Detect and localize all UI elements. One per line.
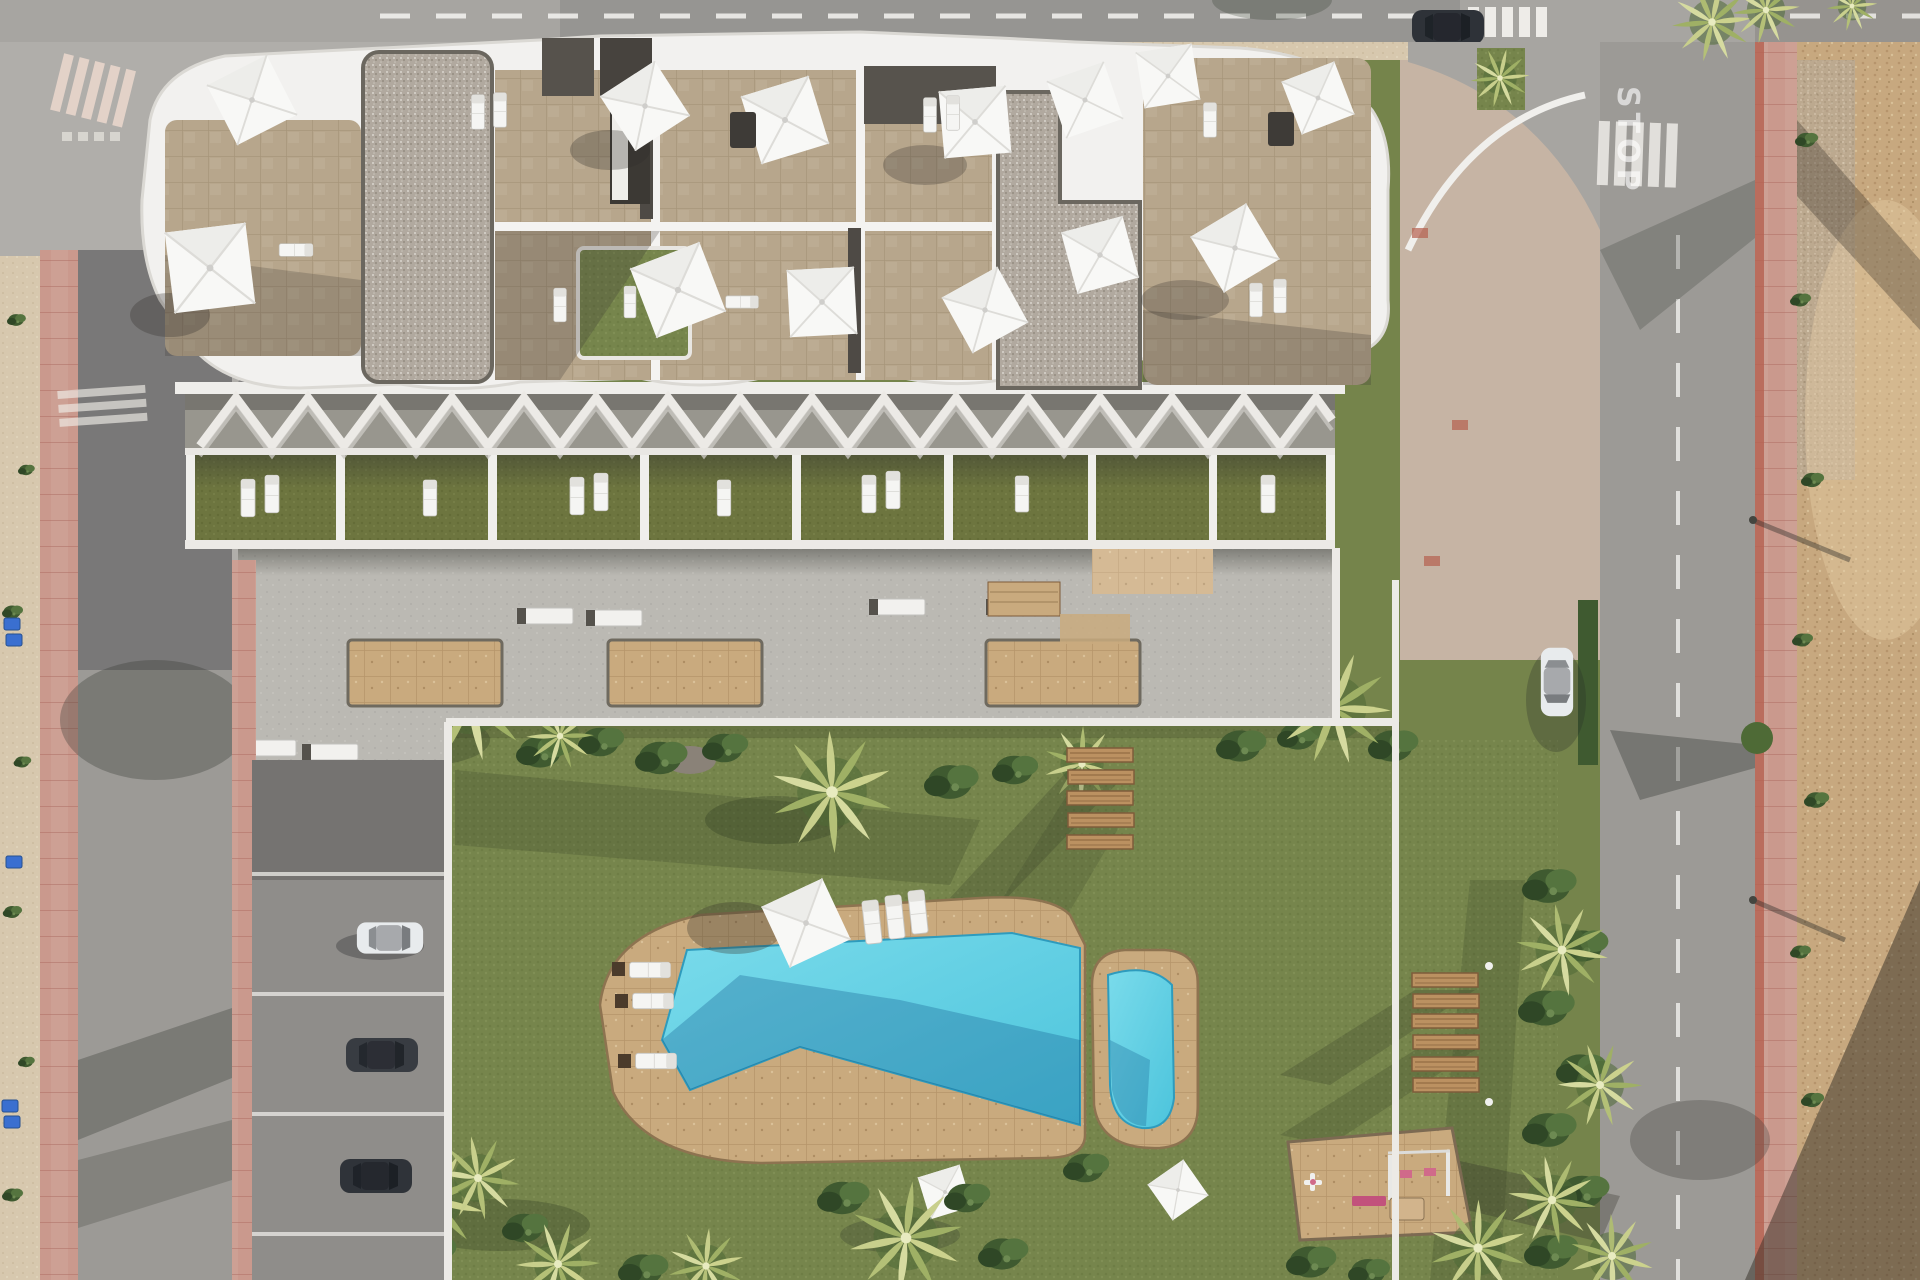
- wood-bench: [1413, 994, 1479, 1008]
- sand-planter: [986, 640, 1140, 706]
- wood-bench: [1413, 1035, 1479, 1049]
- roof-lounger: [924, 98, 937, 133]
- plaza-bench: [302, 744, 358, 760]
- roof-table-set: [730, 112, 756, 148]
- recycle-bin: [2, 1100, 18, 1112]
- terrace-lounger: [1261, 475, 1275, 512]
- wood-plank: [1068, 770, 1134, 784]
- roof-lounger: [624, 286, 636, 318]
- street-car-dark: [1412, 10, 1484, 44]
- roof-lounger: [1274, 279, 1287, 313]
- wood-bench: [1412, 1014, 1478, 1028]
- kidney-pool: [1092, 950, 1198, 1148]
- stall-line: [252, 872, 446, 876]
- stop-road-marking: STOP: [1610, 86, 1645, 196]
- playground: [1288, 1128, 1472, 1240]
- terrace-lounger: [594, 473, 608, 510]
- pool-lounger: [636, 1053, 677, 1068]
- roof-lounger: [279, 244, 313, 257]
- terrace-lounger: [862, 475, 876, 512]
- roof-lounger: [947, 96, 960, 131]
- recycle-bin: [6, 856, 22, 868]
- terrace-lounger: [265, 475, 279, 512]
- crosswalk-left-road: [57, 385, 147, 427]
- swing-seat: [1400, 1170, 1412, 1178]
- garden-east-wall: [1392, 580, 1399, 1280]
- scene-svg: STOP: [0, 0, 1920, 1280]
- terrace-lounger: [570, 477, 584, 514]
- roof-lounger: [554, 288, 567, 322]
- sand-planter: [608, 640, 762, 706]
- ground-terraces: [185, 455, 1335, 549]
- wood-plank: [1067, 791, 1133, 805]
- wood-bench: [1412, 1057, 1478, 1071]
- roof-lounger: [1250, 283, 1263, 317]
- apartment-building-roof: [129, 20, 1388, 388]
- street-lamp: [1749, 896, 1757, 904]
- pool-lounger: [630, 962, 671, 977]
- terrace-lounger: [717, 480, 731, 516]
- roof-lounger: [472, 95, 485, 130]
- street-car-white: [1541, 648, 1573, 716]
- terrace-lounger: [886, 471, 900, 508]
- wood-plank: [1067, 748, 1133, 762]
- aerial-render: STOP: [0, 0, 1920, 1280]
- parked-car-dark: [346, 1038, 418, 1072]
- plaza-south-wall: [446, 718, 1392, 726]
- recycle-bin: [4, 618, 20, 630]
- parked-car-white: [357, 922, 423, 953]
- roof-table-set: [1268, 112, 1294, 146]
- garden-lamp: [1485, 962, 1493, 970]
- stall-line: [252, 1232, 446, 1236]
- roof-lounger: [1204, 103, 1217, 138]
- play-bench: [1352, 1196, 1386, 1206]
- recycle-bin: [4, 1116, 20, 1128]
- stall-line: [252, 992, 446, 996]
- wood-plank: [1067, 835, 1133, 849]
- wood-bench: [1413, 1078, 1479, 1092]
- steps: [988, 582, 1060, 616]
- terrace-lounger: [423, 480, 437, 516]
- terrace-front-wall: [185, 540, 1335, 549]
- street-tree: [1741, 722, 1773, 754]
- parked-car-dark: [340, 1159, 412, 1193]
- plaza-bench: [869, 599, 925, 615]
- garden-lamp: [1485, 1098, 1493, 1106]
- garden-west-wall: [444, 722, 452, 1280]
- sand-planter: [348, 640, 502, 706]
- street-lamp: [1749, 516, 1757, 524]
- plaza-east-wall: [1332, 548, 1340, 722]
- swing-seat: [1424, 1168, 1436, 1176]
- wood-bench: [1412, 973, 1478, 987]
- recycle-bin: [6, 634, 22, 646]
- terrace-lounger: [241, 479, 255, 516]
- pool-lounger: [633, 993, 674, 1008]
- terrace-lounger: [1015, 476, 1029, 512]
- plaza-bench: [586, 610, 642, 626]
- wood-plank: [1068, 813, 1134, 827]
- planters: [348, 640, 1140, 706]
- pergola-band: [175, 382, 1345, 456]
- dark-roof-box: [542, 38, 594, 96]
- roof-lounger: [726, 296, 759, 308]
- stall-line: [252, 1112, 446, 1116]
- roof-lounger: [494, 93, 507, 128]
- plaza-bench: [517, 608, 573, 624]
